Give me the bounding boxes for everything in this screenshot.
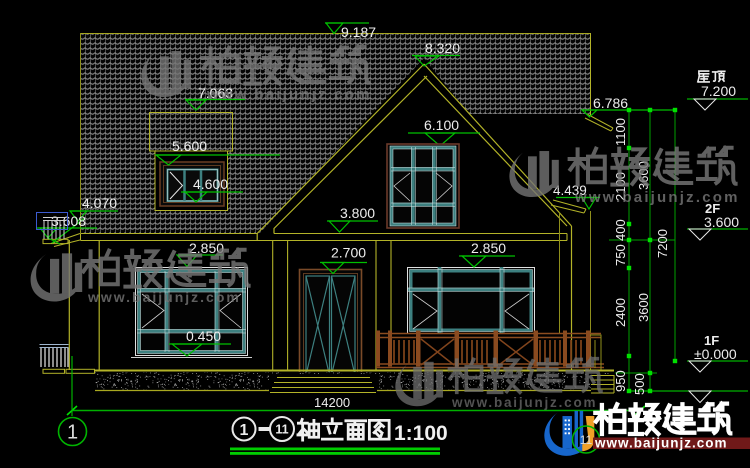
- svg-text:500: 500: [632, 373, 647, 395]
- svg-text:2.700: 2.700: [331, 245, 366, 261]
- svg-text:www.baijunjz.com: www.baijunjz.com: [206, 86, 372, 103]
- svg-text:11: 11: [275, 423, 288, 437]
- svg-text:950: 950: [613, 370, 628, 392]
- svg-text:400: 400: [613, 219, 628, 241]
- svg-text:6.100: 6.100: [424, 117, 459, 133]
- svg-text:7.200: 7.200: [701, 83, 736, 99]
- svg-text:3600: 3600: [636, 293, 651, 322]
- svg-text:www.baijunjz.com: www.baijunjz.com: [574, 189, 740, 206]
- svg-text:±0.000: ±0.000: [694, 346, 737, 362]
- svg-text:8.320: 8.320: [425, 40, 460, 56]
- svg-text:2.850: 2.850: [471, 240, 506, 256]
- svg-text:1100: 1100: [613, 118, 628, 146]
- svg-text:0.450: 0.450: [186, 328, 221, 344]
- svg-text:4.600: 4.600: [193, 176, 228, 192]
- svg-text:11: 11: [580, 433, 593, 447]
- svg-text:14200: 14200: [314, 395, 350, 410]
- svg-text:3.800: 3.800: [340, 205, 375, 221]
- svg-text:3.600: 3.600: [704, 214, 739, 230]
- svg-text:750: 750: [613, 244, 628, 266]
- svg-text:5.600: 5.600: [172, 138, 207, 154]
- svg-text:www.baijunjz.com: www.baijunjz.com: [594, 436, 728, 451]
- svg-text:www.baijunjz.com: www.baijunjz.com: [451, 395, 597, 410]
- svg-text:4.070: 4.070: [82, 195, 117, 211]
- svg-text:1: 1: [240, 422, 249, 439]
- svg-text:www.baijunjz.com: www.baijunjz.com: [87, 289, 241, 305]
- svg-text:6.786: 6.786: [593, 95, 628, 111]
- svg-text:1:100: 1:100: [394, 422, 448, 445]
- svg-text:2400: 2400: [613, 298, 628, 327]
- svg-text:9.187: 9.187: [341, 24, 376, 40]
- svg-text:1: 1: [67, 422, 78, 444]
- svg-text:7200: 7200: [655, 229, 670, 258]
